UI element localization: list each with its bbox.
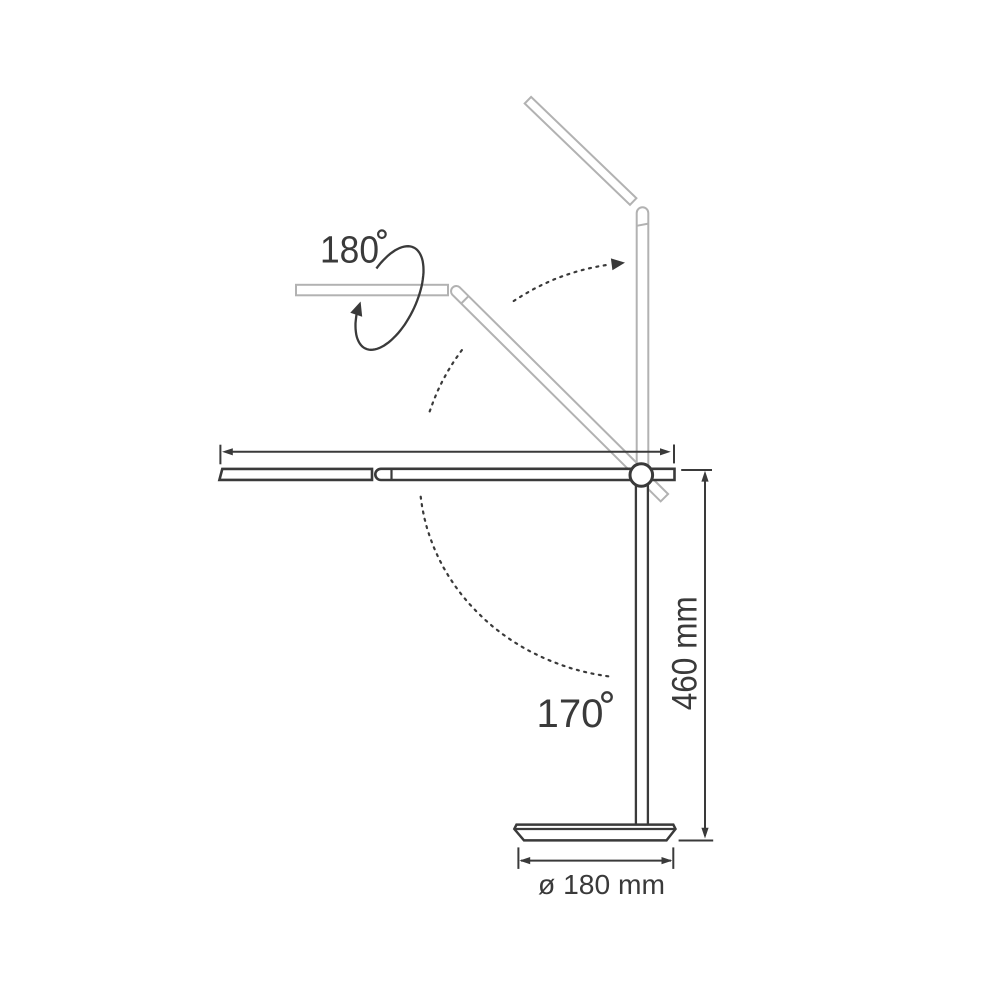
svg-text:460 mm: 460 mm [665,596,704,710]
svg-text:180: 180 [320,229,379,271]
svg-text:170: 170 [537,692,604,736]
svg-text:ø 180 mm: ø 180 mm [538,869,665,900]
